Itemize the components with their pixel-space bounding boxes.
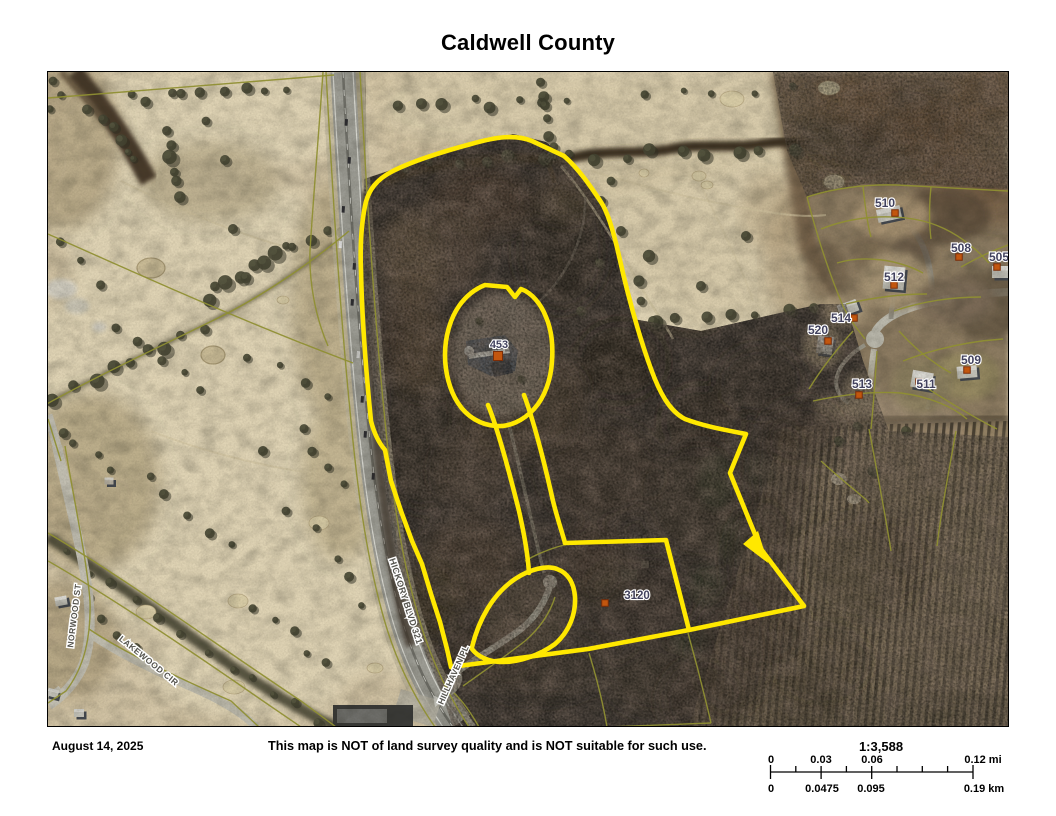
svg-text:513: 513 <box>852 377 872 391</box>
svg-text:0.0475: 0.0475 <box>805 783 839 795</box>
svg-text:508: 508 <box>951 241 971 255</box>
svg-text:0.12 mi: 0.12 mi <box>964 754 1001 766</box>
svg-text:1:3,588: 1:3,588 <box>859 739 903 754</box>
svg-text:514: 514 <box>831 311 851 325</box>
svg-text:453: 453 <box>490 339 508 351</box>
svg-text:510: 510 <box>875 196 895 210</box>
svg-text:512: 512 <box>884 270 904 284</box>
svg-text:0.06: 0.06 <box>861 754 882 766</box>
svg-text:0.03: 0.03 <box>810 754 831 766</box>
svg-text:511: 511 <box>916 377 936 391</box>
svg-text:0.19 km: 0.19 km <box>964 783 1005 795</box>
svg-text:0: 0 <box>768 783 774 795</box>
svg-text:509: 509 <box>961 353 981 367</box>
svg-text:520: 520 <box>808 323 828 337</box>
svg-text:505: 505 <box>989 250 1008 264</box>
svg-text:3120: 3120 <box>624 590 650 602</box>
svg-text:0.095: 0.095 <box>857 783 885 795</box>
svg-text:0: 0 <box>768 754 774 766</box>
